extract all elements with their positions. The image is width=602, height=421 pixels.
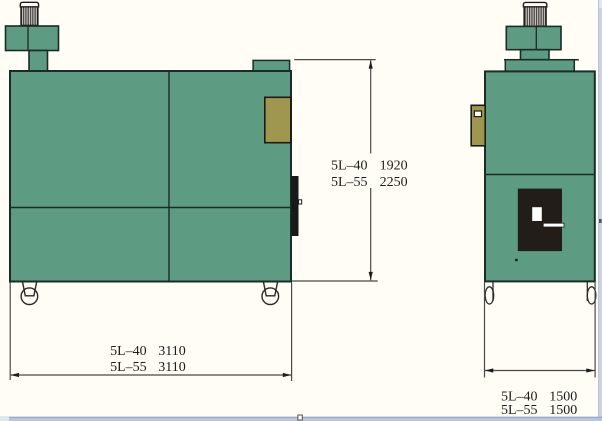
svg-text:5L–55: 5L–55: [110, 360, 147, 375]
svg-text:1920: 1920: [380, 159, 408, 174]
svg-text:5L–40: 5L–40: [331, 159, 368, 174]
svg-text:3110: 3110: [158, 344, 185, 359]
svg-text:1500: 1500: [549, 403, 577, 418]
svg-text:5L–55: 5L–55: [331, 175, 368, 190]
svg-text:3110: 3110: [158, 360, 185, 375]
svg-text:5L–40: 5L–40: [110, 344, 147, 359]
svg-text:2250: 2250: [380, 175, 408, 190]
svg-text:5L–55: 5L–55: [501, 403, 538, 418]
